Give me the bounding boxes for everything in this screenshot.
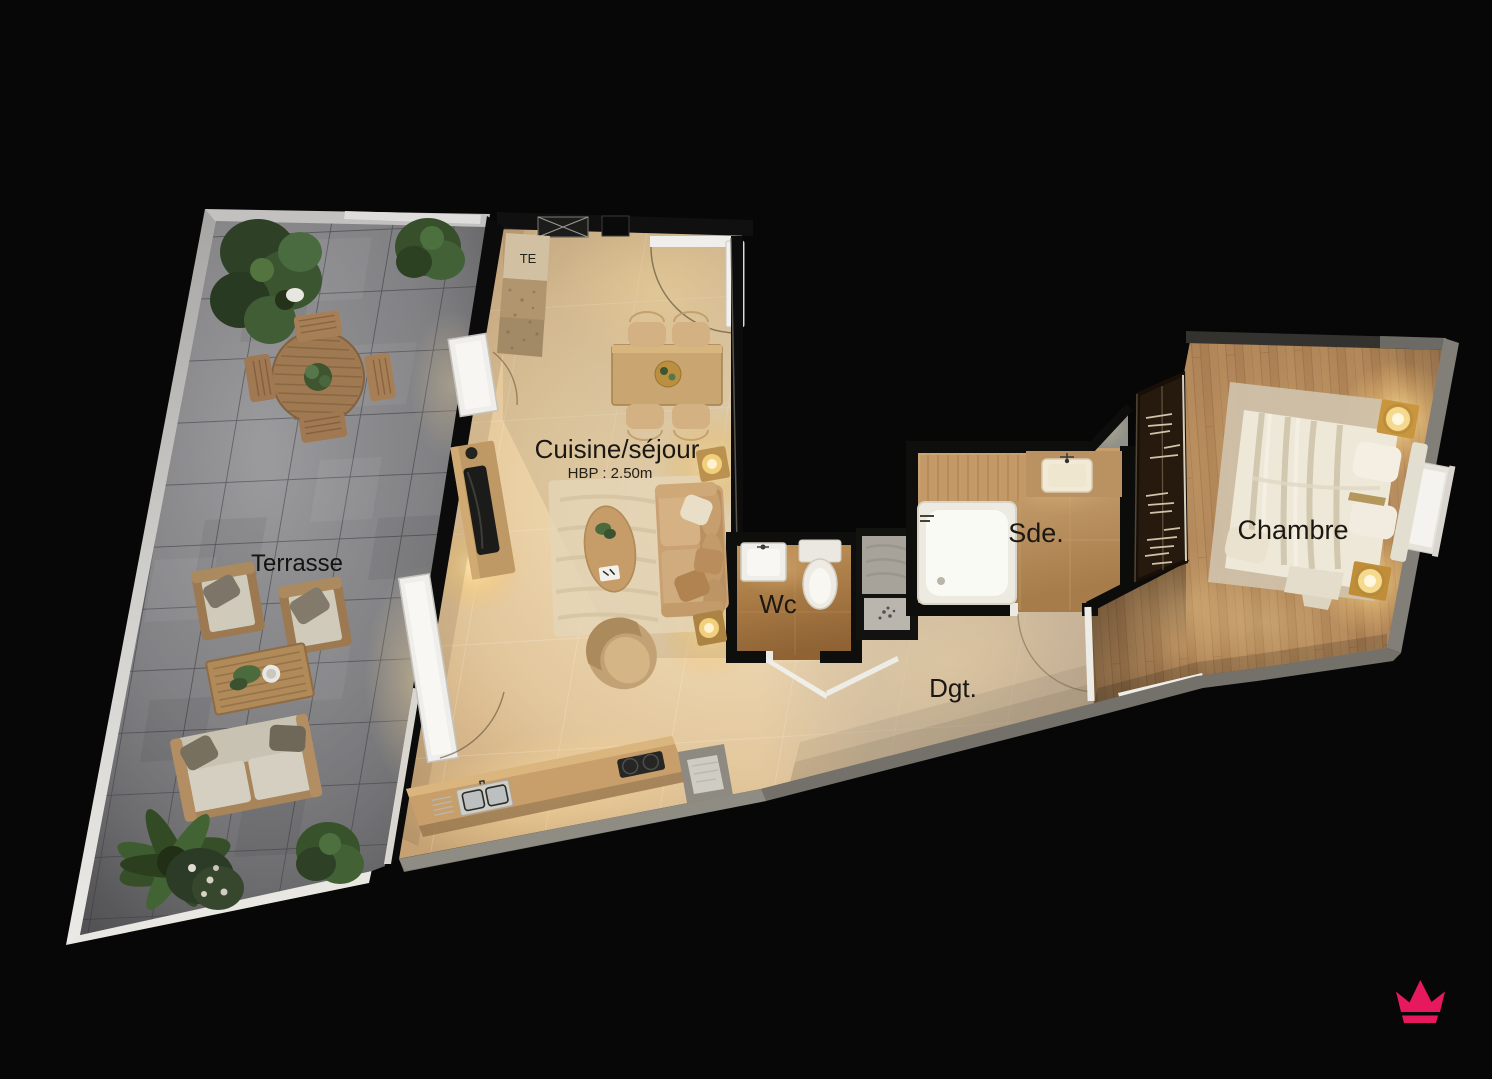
svg-text:TE: TE	[520, 251, 537, 266]
svg-text:Wc: Wc	[759, 589, 797, 619]
svg-text:Cuisine/séjour: Cuisine/séjour	[535, 434, 700, 464]
svg-text:Chambre: Chambre	[1237, 515, 1348, 545]
svg-text:Dgt.: Dgt.	[929, 673, 977, 703]
svg-text:HBP : 2.50m: HBP : 2.50m	[568, 465, 653, 482]
svg-text:Sde.: Sde.	[1008, 518, 1064, 548]
svg-text:Terrasse: Terrasse	[251, 550, 343, 577]
